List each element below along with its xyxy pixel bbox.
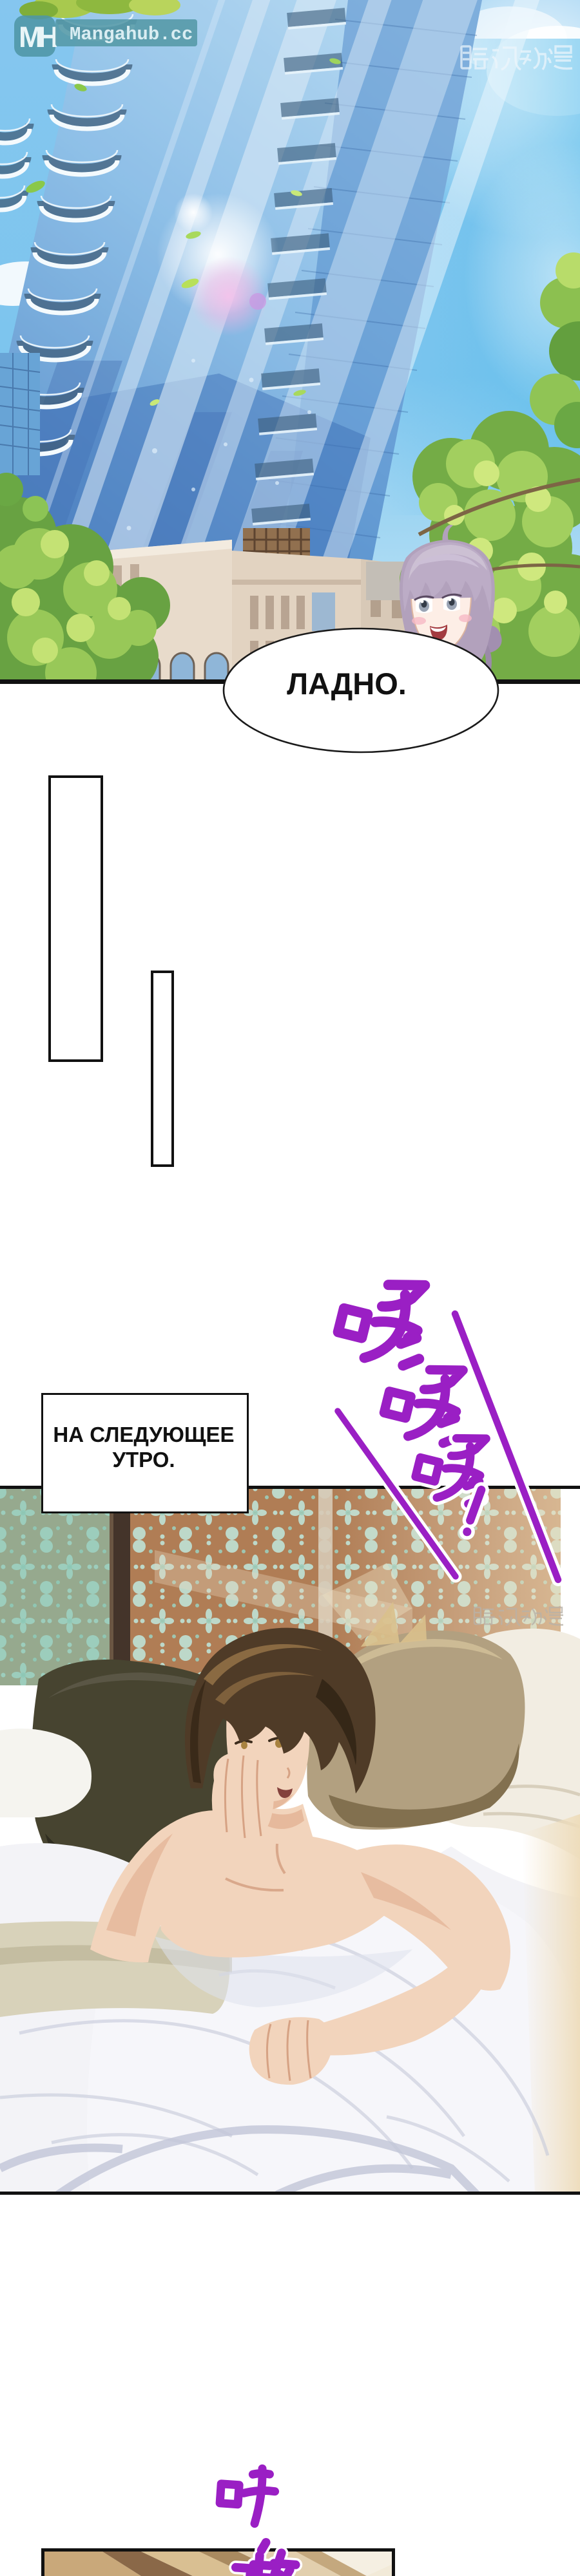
svg-text:ЛАДНО.: ЛАДНО. <box>287 667 407 701</box>
svg-text:MH: MH <box>19 21 57 53</box>
svg-text:Mangahub.cc: Mangahub.cc <box>70 24 193 45</box>
